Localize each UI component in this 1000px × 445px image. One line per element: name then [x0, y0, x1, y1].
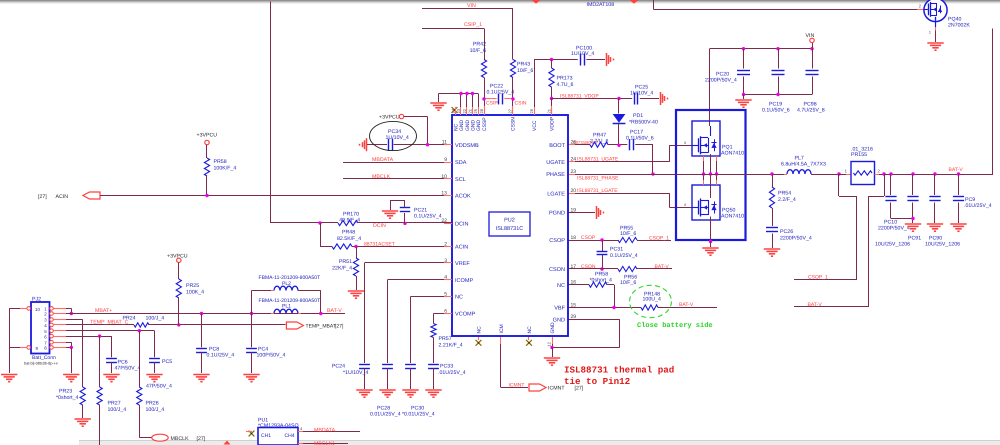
svg-text:NC: NC — [557, 283, 565, 289]
svg-text:[27]: [27] — [197, 436, 206, 442]
svg-text:NC: NC — [477, 326, 483, 334]
svg-text:4: 4 — [300, 426, 303, 431]
svg-text:21: 21 — [547, 108, 552, 113]
svg-text:PU2: PU2 — [504, 218, 515, 224]
svg-text:4.7U/25V_8: 4.7U/25V_8 — [797, 107, 825, 113]
svg-text:BAT-V: BAT-V — [679, 302, 694, 308]
svg-text:1: 1 — [929, 31, 931, 35]
svg-text:0.1U/25V_4: 0.1U/25V_4 — [414, 214, 442, 220]
svg-text:0.1U/50V_6: 0.1U/50V_6 — [762, 107, 790, 113]
svg-text:+3VPCU: +3VPCU — [379, 115, 400, 121]
svg-text:PQ40: PQ40 — [948, 16, 962, 22]
svg-text:PC24: PC24 — [332, 364, 345, 370]
svg-text:100/J_4: 100/J_4 — [108, 407, 127, 413]
svg-text:ACOK: ACOK — [455, 194, 471, 200]
svg-text:21: 21 — [468, 108, 473, 113]
svg-text:MBAT+: MBAT+ — [95, 308, 112, 314]
svg-text:PD1: PD1 — [633, 113, 643, 119]
svg-text:1U/10V_4: 1U/10V_4 — [630, 90, 653, 96]
svg-text:PR51: PR51 — [339, 259, 352, 265]
svg-text:PR58: PR58 — [214, 159, 227, 165]
svg-text:tie to Pin12: tie to Pin12 — [564, 376, 630, 387]
svg-text:10U/25V_1206: 10U/25V_1206 — [875, 242, 910, 248]
svg-text:0.1U/50V_6: 0.1U/50V_6 — [626, 136, 654, 142]
svg-text:BAT-V: BAT-V — [655, 264, 670, 270]
svg-text:29: 29 — [571, 314, 577, 320]
svg-text:PHASE: PHASE — [546, 172, 565, 178]
svg-text:2200P/50V_4: 2200P/50V_4 — [780, 235, 812, 241]
svg-text:.01U/25V_4: .01U/25V_4 — [964, 203, 992, 209]
svg-text:49.9/F_4: 49.9/F_4 — [339, 218, 360, 224]
svg-text:ISL88731 thermal pad: ISL88731 thermal pad — [564, 365, 674, 376]
svg-text:PGND: PGND — [549, 211, 565, 217]
svg-text:16: 16 — [571, 280, 577, 286]
svg-text:bat-blj-08tc0b-8p-i-v: bat-blj-08tc0b-8p-i-v — [24, 361, 58, 365]
svg-text:10U/25V_1206: 10U/25V_1206 — [925, 242, 960, 248]
svg-text:2.7/U_6: 2.7/U_6 — [590, 138, 608, 144]
svg-text:6.8uH/4.5A_7X7X3: 6.8uH/4.5A_7X7X3 — [781, 162, 826, 168]
svg-text:CH1: CH1 — [261, 433, 271, 439]
svg-text:CSSP: CSSP — [482, 117, 488, 131]
svg-text:ISL88731_UGATE: ISL88731_UGATE — [577, 157, 619, 163]
svg-text:CSOP_1: CSOP_1 — [808, 274, 828, 280]
svg-text:82.5K/F_4: 82.5K/F_4 — [337, 236, 361, 242]
svg-text:2200P/50V_4: 2200P/50V_4 — [878, 226, 910, 232]
svg-text:Batt_Conn: Batt_Conn — [32, 355, 56, 361]
svg-text:15: 15 — [571, 302, 577, 308]
svg-text:20: 20 — [571, 188, 577, 194]
svg-text:ISL88731_VDOP: ISL88731_VDOP — [560, 93, 599, 99]
svg-text:PC4: PC4 — [258, 346, 268, 352]
svg-text:24: 24 — [451, 108, 456, 113]
svg-text:*0short_4: *0short_4 — [590, 277, 613, 283]
svg-text:PC26: PC26 — [780, 229, 793, 235]
svg-text:+3VPCU: +3VPCU — [197, 133, 218, 139]
svg-text:PC28: PC28 — [377, 406, 390, 412]
svg-text:PC5: PC5 — [162, 359, 172, 365]
svg-text:PR25: PR25 — [186, 283, 199, 289]
svg-text:[27]: [27] — [38, 194, 47, 200]
svg-text:BAT-V: BAT-V — [327, 308, 342, 314]
svg-text:MBDATA: MBDATA — [372, 157, 394, 163]
svg-text:MBCLK: MBCLK — [372, 174, 391, 180]
svg-text:12: 12 — [547, 341, 552, 346]
svg-text:2: 2 — [878, 168, 881, 173]
svg-text:PR24: PR24 — [123, 315, 136, 321]
svg-text:26: 26 — [571, 140, 577, 146]
svg-text:4: 4 — [684, 141, 686, 145]
svg-text:CSOP_1: CSOP_1 — [649, 235, 669, 241]
svg-text:VCC: VCC — [532, 120, 538, 131]
svg-text:PR43: PR43 — [517, 62, 530, 68]
svg-text:10/F_6: 10/F_6 — [470, 48, 486, 54]
svg-text:0.1U/25V_4: 0.1U/25V_4 — [610, 253, 638, 259]
svg-text:24: 24 — [571, 157, 577, 163]
svg-text:.01U/25V_4: .01U/25V_4 — [438, 370, 466, 376]
svg-text:AON7410: AON7410 — [721, 214, 744, 220]
svg-text:PC33: PC33 — [440, 364, 453, 370]
svg-text:18: 18 — [571, 235, 577, 241]
svg-text:ACIN: ACIN — [55, 194, 68, 200]
svg-text:22K/F_4: 22K/F_4 — [332, 266, 352, 272]
svg-text:SCL: SCL — [455, 177, 466, 183]
svg-text:10: 10 — [35, 307, 40, 312]
svg-text:2.2/F_4: 2.2/F_4 — [778, 197, 796, 203]
svg-text:CSOP: CSOP — [549, 238, 565, 244]
svg-text:MBDATA: MBDATA — [314, 427, 336, 433]
svg-text:100K/F_4: 100K/F_4 — [214, 166, 237, 172]
svg-text:PR26: PR26 — [146, 401, 159, 407]
svg-text:VDOP: VDOP — [550, 116, 556, 131]
svg-text:27: 27 — [507, 108, 512, 113]
svg-text:PR27: PR27 — [108, 401, 121, 407]
svg-text:ICM: ICM — [499, 324, 505, 333]
svg-text:10/F_6: 10/F_6 — [517, 68, 533, 74]
svg-text:CH4: CH4 — [285, 433, 295, 439]
svg-text:PC8: PC8 — [209, 346, 219, 352]
svg-text:PR42: PR42 — [473, 42, 486, 48]
svg-text:CSIN: CSIN — [515, 100, 527, 106]
svg-text:MBCLK: MBCLK — [171, 436, 190, 442]
svg-text:PR155: PR155 — [851, 152, 867, 158]
svg-text:28: 28 — [479, 108, 484, 113]
svg-text:1: 1 — [845, 168, 848, 173]
svg-text:VBF: VBF — [554, 306, 565, 312]
svg-text:TEMP_MBAT: TEMP_MBAT — [306, 324, 336, 330]
svg-text:CSOP: CSOP — [581, 235, 596, 241]
svg-text:PR54: PR54 — [778, 191, 791, 197]
svg-text:0.1U/25V_4: 0.1U/25V_4 — [207, 353, 235, 359]
svg-text:2: 2 — [919, 4, 922, 9]
svg-text:BAT-V: BAT-V — [949, 167, 964, 173]
svg-text:10/F_6: 10/F_6 — [620, 231, 636, 237]
svg-text:19: 19 — [571, 207, 577, 213]
svg-text:[27]: [27] — [335, 324, 344, 330]
svg-text:4.7U_6: 4.7U_6 — [557, 82, 574, 88]
svg-text:ACIN: ACIN — [455, 245, 468, 251]
svg-text:CSON: CSON — [549, 267, 565, 273]
svg-text:ICMNT: ICMNT — [509, 382, 525, 388]
svg-text:PC31: PC31 — [610, 247, 623, 253]
svg-text:AON7410: AON7410 — [721, 151, 744, 157]
svg-text:ICOMP: ICOMP — [455, 278, 473, 284]
svg-text:IMD2AT108: IMD2AT108 — [587, 2, 615, 8]
svg-text:PR23: PR23 — [59, 389, 72, 395]
svg-text:0.1U/25V_4: 0.1U/25V_4 — [487, 90, 515, 96]
svg-text:UGATE: UGATE — [546, 160, 565, 166]
svg-text:GND: GND — [550, 322, 556, 334]
svg-text:VDDSMB: VDDSMB — [455, 143, 479, 149]
svg-text:ISL88731_PHASE: ISL88731_PHASE — [577, 175, 619, 181]
svg-text:100P/50V_4: 100P/50V_4 — [257, 353, 286, 359]
svg-text:PL2: PL2 — [282, 281, 291, 287]
svg-text:100/J_4: 100/J_4 — [146, 315, 165, 321]
svg-text:BAT-V: BAT-V — [808, 302, 823, 308]
svg-text:SDA: SDA — [455, 160, 467, 166]
svg-text:ISL88731_LGATE: ISL88731_LGATE — [577, 188, 618, 194]
svg-text:10/F_6: 10/F_6 — [620, 280, 636, 286]
svg-text:PC30: PC30 — [411, 406, 424, 412]
svg-text:100U_4: 100U_4 — [643, 297, 661, 303]
svg-text:ICMNT: ICMNT — [548, 386, 565, 392]
svg-text:*1U/10V_4: *1U/10V_4 — [343, 370, 368, 376]
svg-text:26: 26 — [529, 108, 534, 113]
svg-text:47P/50V_4: 47P/50V_4 — [115, 366, 141, 372]
svg-text:2200P/50V_4: 2200P/50V_4 — [705, 78, 737, 84]
svg-text:PR57: PR57 — [439, 336, 452, 342]
svg-text:DCIN: DCIN — [373, 223, 386, 229]
svg-text:0.01U/25V_4: 0.01U/25V_4 — [370, 412, 401, 418]
svg-text:PL1: PL1 — [282, 303, 291, 309]
svg-text:MBCLK1: MBCLK1 — [314, 441, 335, 445]
svg-text:2.21K/F_4: 2.21K/F_4 — [439, 342, 463, 348]
svg-text:47P/50V_4: 47P/50V_4 — [146, 383, 172, 389]
svg-text:ISL88731C: ISL88731C — [496, 226, 524, 232]
svg-text:CSON: CSON — [581, 264, 596, 270]
svg-text:2N7002K: 2N7002K — [948, 23, 970, 29]
svg-text:NC: NC — [455, 295, 463, 301]
svg-text:NC: NC — [527, 326, 533, 334]
svg-text:VCOMP: VCOMP — [455, 312, 476, 318]
svg-text:9: 9 — [444, 157, 447, 163]
svg-text:PR173: PR173 — [557, 76, 573, 82]
svg-text:CSIP_1: CSIP_1 — [464, 22, 482, 28]
svg-text:BOOT: BOOT — [549, 143, 565, 149]
svg-text:4: 4 — [684, 203, 686, 207]
svg-text:CSSN: CSSN — [511, 117, 517, 131]
svg-text:CSIP: CSIP — [486, 100, 498, 106]
svg-text:17: 17 — [571, 264, 577, 270]
svg-text:*0short_4: *0short_4 — [56, 395, 79, 401]
svg-text:VIN: VIN — [806, 33, 815, 39]
svg-text:100/J_4: 100/J_4 — [146, 407, 165, 413]
svg-text:88731ACSET: 88731ACSET — [364, 241, 395, 247]
svg-text:1U/10V_4: 1U/10V_4 — [571, 51, 594, 57]
svg-text:100K_4: 100K_4 — [186, 289, 204, 295]
svg-text:LGATE: LGATE — [547, 191, 565, 197]
svg-text:1U/10V_4: 1U/10V_4 — [386, 135, 409, 141]
svg-text:25: 25 — [473, 108, 478, 113]
svg-text:23: 23 — [571, 169, 577, 175]
svg-text:DCIN: DCIN — [455, 222, 469, 228]
svg-text:PR48: PR48 — [342, 230, 355, 236]
svg-text:*RB500V-40: *RB500V-40 — [629, 119, 658, 125]
svg-text:*0.01U/25V_4: *0.01U/25V_4 — [402, 412, 435, 418]
svg-text:Close battery side: Close battery side — [637, 321, 713, 330]
svg-text:VREF: VREF — [455, 261, 470, 267]
